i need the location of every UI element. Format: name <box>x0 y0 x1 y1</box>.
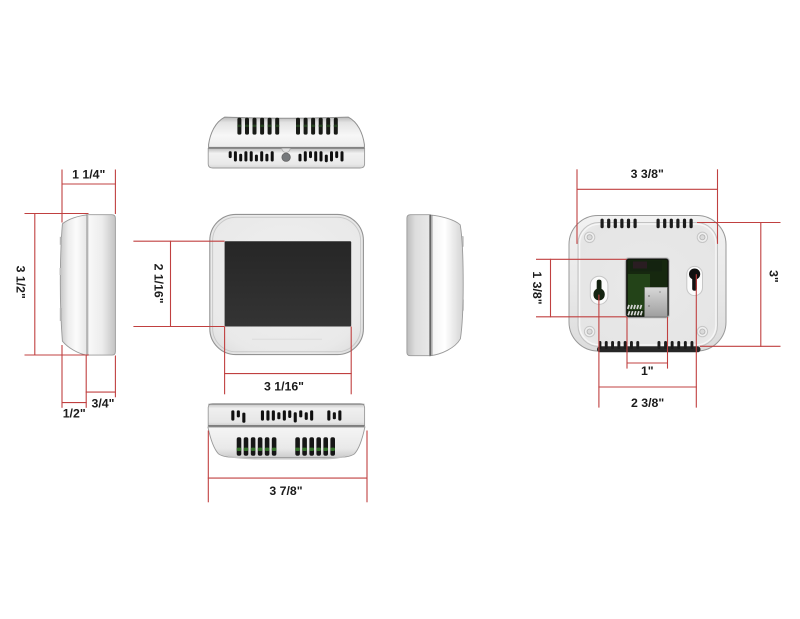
svg-text:1": 1" <box>641 364 654 378</box>
svg-text:3/4": 3/4" <box>92 396 115 410</box>
svg-text:1 1/4": 1 1/4" <box>72 168 105 182</box>
svg-text:1 3/8": 1 3/8" <box>530 271 544 304</box>
svg-text:3 7/8": 3 7/8" <box>269 484 302 498</box>
svg-text:3": 3" <box>766 270 780 283</box>
svg-text:1/2": 1/2" <box>63 407 86 421</box>
svg-text:3 1/2": 3 1/2" <box>13 266 27 299</box>
svg-text:2 3/8": 2 3/8" <box>631 396 664 410</box>
svg-text:3 3/8": 3 3/8" <box>631 167 664 181</box>
svg-text:2 1/16": 2 1/16" <box>152 264 166 304</box>
svg-text:3 1/16": 3 1/16" <box>264 380 304 394</box>
